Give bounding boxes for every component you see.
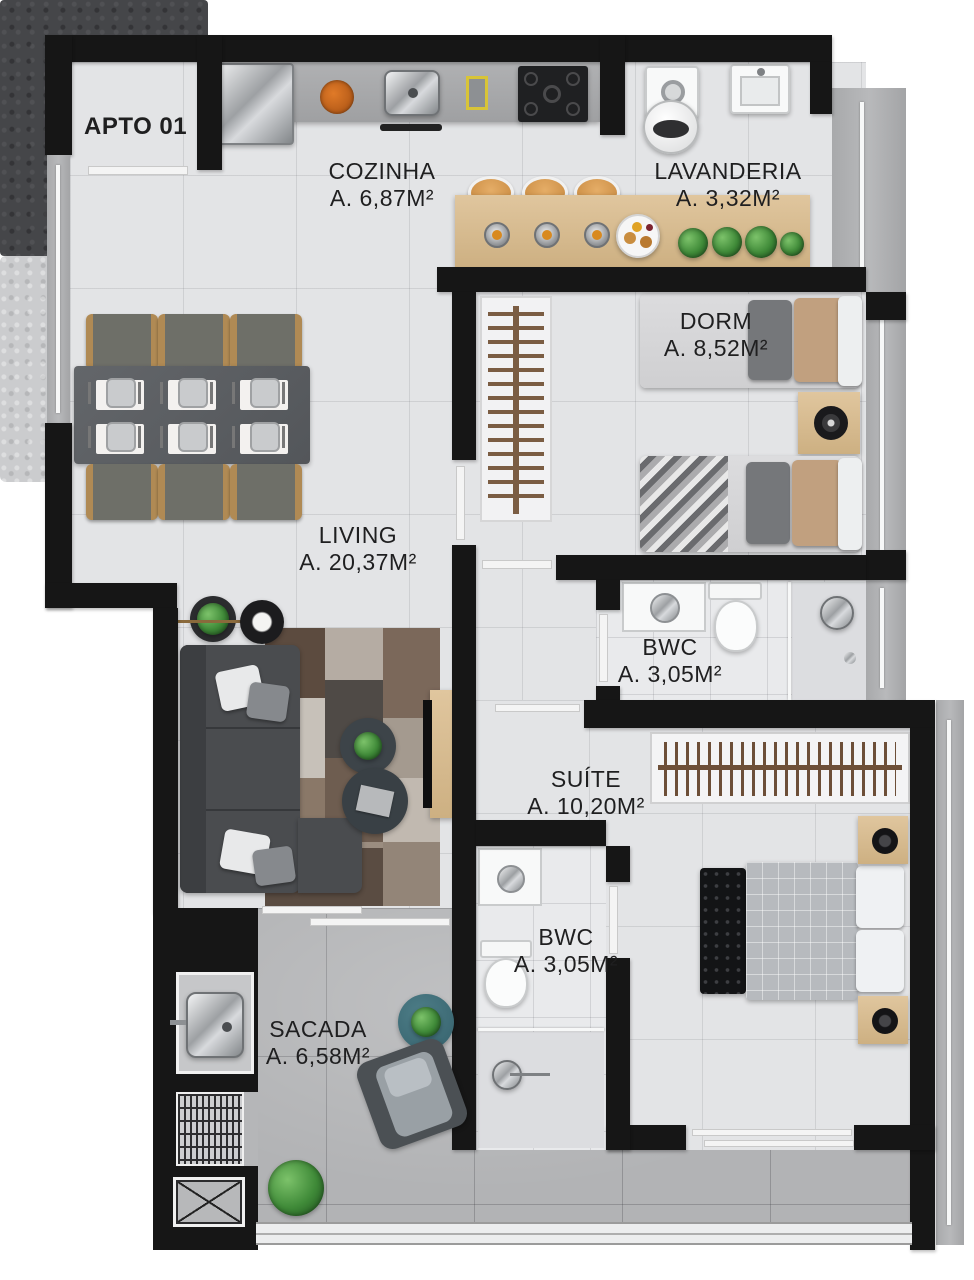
place-setting <box>240 380 288 410</box>
grill-handle <box>170 1020 186 1025</box>
rug-patch <box>325 628 383 680</box>
room-name: LIVING <box>299 522 417 549</box>
room-area: A. 3,05M² <box>514 951 618 978</box>
dorm-door-sill <box>482 560 552 569</box>
nightstand <box>858 816 908 864</box>
cushion-seam <box>206 809 300 811</box>
entry-door-sill <box>88 166 188 175</box>
room-name: SUÍTE <box>527 766 645 793</box>
burner <box>543 85 561 103</box>
bed-pillow-gray <box>746 462 790 544</box>
bar-plant <box>745 226 777 258</box>
balcony-plant <box>268 1160 324 1216</box>
bar-plant <box>712 227 742 257</box>
outside-area <box>0 583 153 1280</box>
wall-dorm-bottom <box>556 555 866 580</box>
wall-central-upper <box>452 292 476 460</box>
place-setting <box>96 380 144 410</box>
bread <box>640 236 652 248</box>
kitchen-sink <box>384 70 440 116</box>
dining-chair <box>158 314 230 370</box>
wall-core-left <box>153 608 178 913</box>
room-area: A. 20,37M² <box>299 549 417 576</box>
wall-left-lower <box>45 423 72 608</box>
laundry-sink <box>730 64 790 114</box>
dish-rack <box>466 76 488 110</box>
cooktop <box>518 66 588 122</box>
sofa-chaise <box>298 818 362 893</box>
apartment-title: APTO 01 <box>84 113 187 141</box>
room-name: BWC <box>514 924 618 951</box>
window-glass <box>880 306 884 550</box>
bed-pillow-tan <box>794 298 844 382</box>
bread <box>624 232 636 244</box>
bar-plant <box>678 228 708 258</box>
room-label-dorm: DORM A. 8,52M² <box>664 308 768 362</box>
glass-balustrade <box>256 1222 912 1245</box>
room-label-suite: SUÍTE A. 10,20M² <box>527 766 645 820</box>
suite-slider-sill <box>704 1140 854 1147</box>
dining-chair <box>86 314 158 370</box>
dorm-closet <box>480 296 552 522</box>
double-bed <box>746 862 858 1000</box>
room-label-lavanderia: LAVANDERIA A. 3,32M² <box>654 158 801 212</box>
place-setting <box>96 424 144 454</box>
stairs <box>176 1092 244 1166</box>
dining-chair <box>230 464 302 520</box>
room-area: A. 8,52M² <box>664 335 768 362</box>
place-setting <box>240 424 288 454</box>
bed-pillow-tan <box>792 460 842 546</box>
window-glass <box>860 102 864 278</box>
vanity-sink <box>650 593 680 623</box>
vanity-sink <box>497 865 525 893</box>
table-lamp <box>872 828 898 854</box>
dome-lens <box>653 120 689 138</box>
room-name: BWC <box>618 634 722 661</box>
elevator <box>176 1180 242 1224</box>
plant-pot <box>190 596 236 642</box>
bar-bowl <box>584 222 610 248</box>
dining-chair <box>230 314 302 370</box>
window-glass <box>880 588 884 688</box>
hand-shower <box>844 652 856 664</box>
tv-console <box>430 690 454 818</box>
cushion-seam <box>206 727 300 729</box>
hall-door-sill <box>456 466 465 540</box>
toilet <box>708 582 762 600</box>
stair-landing <box>244 1092 258 1166</box>
closet-rail <box>513 306 519 514</box>
burner <box>524 102 538 116</box>
faucet <box>757 68 765 76</box>
wall-bwc2-right-b <box>606 958 630 1150</box>
book <box>356 785 395 818</box>
fruit-bowl <box>320 80 354 114</box>
burner <box>524 72 538 86</box>
room-label-bwc1: BWC A. 3,05M² <box>618 634 722 688</box>
window-strip-right-mid <box>866 292 906 700</box>
sofa-pillow-gray <box>252 845 297 886</box>
rug-patch <box>383 842 440 906</box>
wardrobe-rail <box>658 765 902 770</box>
place-setting <box>168 424 216 454</box>
plant <box>354 732 382 760</box>
room-label-sacada: SACADA A. 6,58M² <box>266 1016 370 1070</box>
burner <box>566 102 580 116</box>
bar-plant <box>780 232 804 256</box>
wall-kitchen-laundry-divider <box>600 35 625 135</box>
room-name: SACADA <box>266 1016 370 1043</box>
room-area: A. 3,32M² <box>654 185 801 212</box>
shower-arm <box>510 1073 550 1076</box>
wall-central-lower <box>452 545 476 1150</box>
table-lamp <box>872 1008 898 1034</box>
plant <box>197 603 229 635</box>
room-label-living: LIVING A. 20,37M² <box>299 522 417 576</box>
bed-pillow-white <box>856 930 904 992</box>
wall-left-turn <box>45 583 177 608</box>
room-label-bwc2: BWC A. 3,05M² <box>514 924 618 978</box>
room-name: LAVANDERIA <box>654 158 801 185</box>
bed-bolster-white <box>838 458 862 550</box>
wall-bwc1-left-a <box>596 580 620 610</box>
vanity <box>622 582 706 632</box>
faucet <box>408 88 418 98</box>
bar-bowl <box>534 222 560 248</box>
fruit <box>632 222 642 232</box>
fridge <box>212 63 294 145</box>
wall-suite-top <box>584 700 935 728</box>
barbecue-grill <box>186 992 244 1058</box>
food-plate <box>616 214 660 258</box>
floor-plan: APTO 01 COZINHA A. 6,87M² LAVANDERIA A. … <box>0 0 974 1280</box>
window-strip-left <box>47 155 70 423</box>
wall-corner-block <box>866 550 906 580</box>
bed-pillow-white <box>856 866 904 928</box>
table-lamp <box>814 406 848 440</box>
berry <box>646 224 653 231</box>
room-area: A. 6,58M² <box>266 1043 370 1070</box>
basin <box>740 76 780 106</box>
coffee-table <box>340 718 396 774</box>
wall-below-bar <box>437 267 866 292</box>
wall-bwc1-left-b <box>596 686 620 700</box>
nightstand <box>858 996 908 1044</box>
place-setting <box>168 380 216 410</box>
wall-exhaust-dome <box>643 100 699 154</box>
balcony-slider-sill <box>262 906 362 914</box>
sofa-pillow-gray <box>246 681 291 722</box>
shower-glass <box>788 582 791 700</box>
towel-bar <box>380 124 442 131</box>
wall-top <box>45 35 832 62</box>
patterned-blanket <box>640 456 728 552</box>
window-glass <box>947 720 951 1225</box>
dining-chair <box>86 464 158 520</box>
suite-wardrobe <box>650 732 910 804</box>
bar-bowl <box>484 222 510 248</box>
room-name: COZINHA <box>329 158 436 185</box>
window-strip-right-bottom <box>936 700 964 1245</box>
dining-chair <box>158 464 230 520</box>
suite-entry-sill <box>495 704 580 712</box>
coffee-table <box>342 768 408 834</box>
nightstand <box>798 392 860 454</box>
floor-lamp <box>240 600 284 644</box>
wall-left-upper <box>45 35 72 155</box>
shower-area <box>478 1032 604 1148</box>
wall-entry-stub <box>197 35 222 170</box>
sofa-back <box>180 645 206 893</box>
shower-glass <box>478 1028 604 1031</box>
room-area: A. 3,05M² <box>618 661 722 688</box>
room-area: A. 6,87M² <box>329 185 436 212</box>
wall-suite-bottom-right <box>854 1125 935 1150</box>
room-name: DORM <box>664 308 768 335</box>
suite-slider-sill <box>692 1129 852 1136</box>
window-glass <box>56 165 60 413</box>
shower-head <box>820 596 854 630</box>
plant <box>411 1007 441 1037</box>
wall-bwc2-top <box>476 820 606 846</box>
wall-suite-right <box>910 728 935 1250</box>
room-area: A. 10,20M² <box>527 793 645 820</box>
bwc1-door-sill <box>599 614 608 682</box>
window-strip-right-top <box>832 88 906 292</box>
vanity <box>478 848 542 906</box>
bed-bolster-white <box>838 296 862 386</box>
tv <box>423 700 432 808</box>
bed-bench <box>700 868 746 994</box>
room-label-cozinha: COZINHA A. 6,87M² <box>329 158 436 212</box>
wall-bwc2-right-a <box>606 846 630 882</box>
wall-corner-block <box>866 292 906 320</box>
grill-knob <box>222 1022 232 1032</box>
burner <box>566 72 580 86</box>
balcony-slider-sill <box>310 918 450 926</box>
wall-laundry-right-stub <box>810 62 832 114</box>
